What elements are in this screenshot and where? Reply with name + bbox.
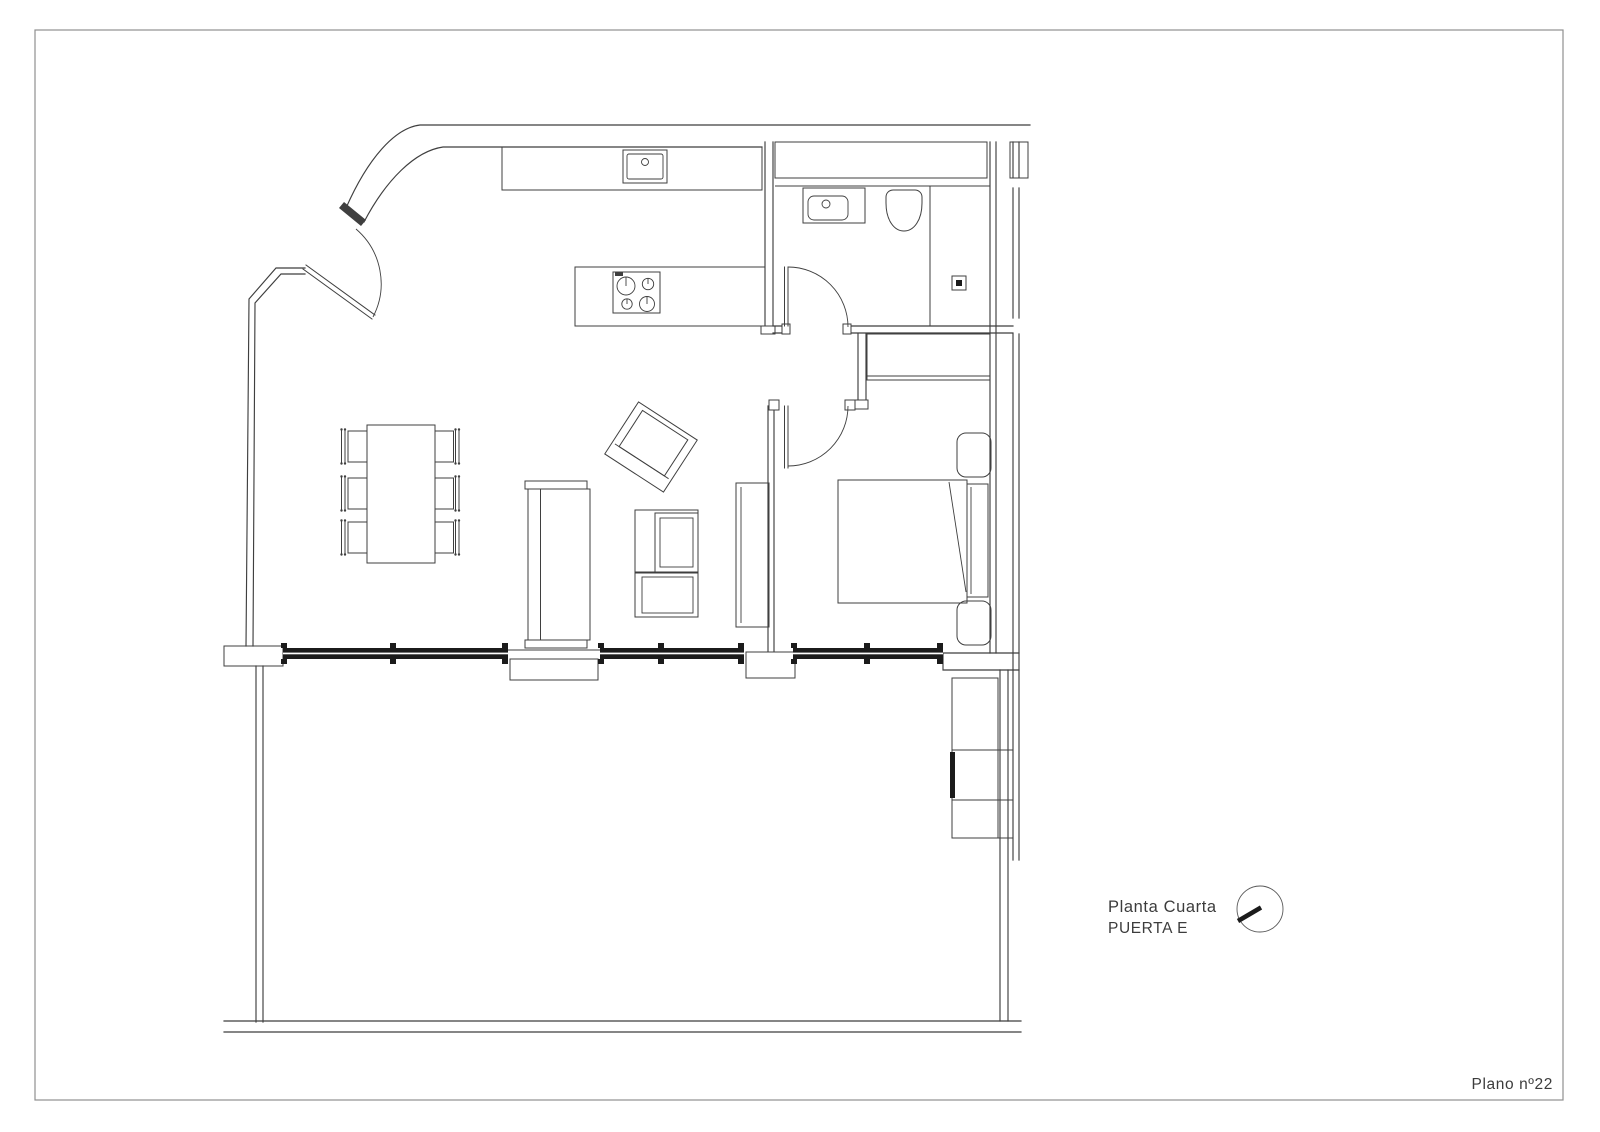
plan-sheet: Planta Cuarta PUERTA E Plano nº22 xyxy=(0,0,1600,1132)
bathroom-sink-icon xyxy=(803,188,865,223)
dining-chairs xyxy=(340,428,460,555)
armchair xyxy=(605,402,697,492)
plan-subtitle: PUERTA E xyxy=(1108,920,1188,937)
door-swing-arc xyxy=(788,267,848,327)
sheet-border xyxy=(35,30,1563,1100)
terrace xyxy=(224,666,1021,1032)
floor-plan-drawing: Planta Cuarta PUERTA E Plano nº22 xyxy=(0,0,1600,1132)
kitchen-counter xyxy=(502,147,762,190)
stove-icon xyxy=(613,272,660,313)
window-wall xyxy=(281,643,943,680)
nightstand xyxy=(957,433,991,477)
window-band xyxy=(791,643,943,664)
wardrobe xyxy=(867,334,990,380)
coffee-table xyxy=(635,510,698,617)
tv-cabinet xyxy=(736,483,769,627)
wall-end-cap xyxy=(339,202,366,226)
kitchen-sink-icon xyxy=(623,150,667,183)
kitchen-island xyxy=(575,267,765,326)
door-leaf xyxy=(785,267,789,326)
living-room xyxy=(340,402,769,648)
dining-table xyxy=(367,425,435,563)
entry-door xyxy=(303,229,381,319)
door-threshold xyxy=(510,659,598,680)
bathroom xyxy=(775,186,990,334)
north-arrow-icon xyxy=(1237,886,1283,932)
service-band xyxy=(775,142,987,178)
bathroom-door xyxy=(782,267,851,334)
window-band xyxy=(598,643,744,664)
door-leaf xyxy=(785,406,789,468)
shower-drain-icon xyxy=(952,276,966,290)
window-band xyxy=(281,643,508,664)
door-swing-arc xyxy=(788,406,848,466)
door-leaf xyxy=(303,265,375,319)
service-cells xyxy=(950,678,1013,838)
plan-title: Planta Cuarta xyxy=(1108,898,1217,916)
toilet-icon xyxy=(886,190,922,231)
window-pier xyxy=(746,652,795,678)
nightstand xyxy=(957,601,991,645)
sofa xyxy=(525,481,590,648)
corner-pier xyxy=(224,646,283,666)
sheet-number: Plano nº22 xyxy=(1472,1076,1553,1093)
kitchen xyxy=(502,147,765,326)
title-block: Planta Cuarta PUERTA E Plano nº22 xyxy=(1108,886,1553,1093)
bedroom xyxy=(769,334,991,645)
bedroom-door xyxy=(769,400,855,468)
bed xyxy=(838,480,988,603)
wall-jamb-cap xyxy=(854,400,868,409)
